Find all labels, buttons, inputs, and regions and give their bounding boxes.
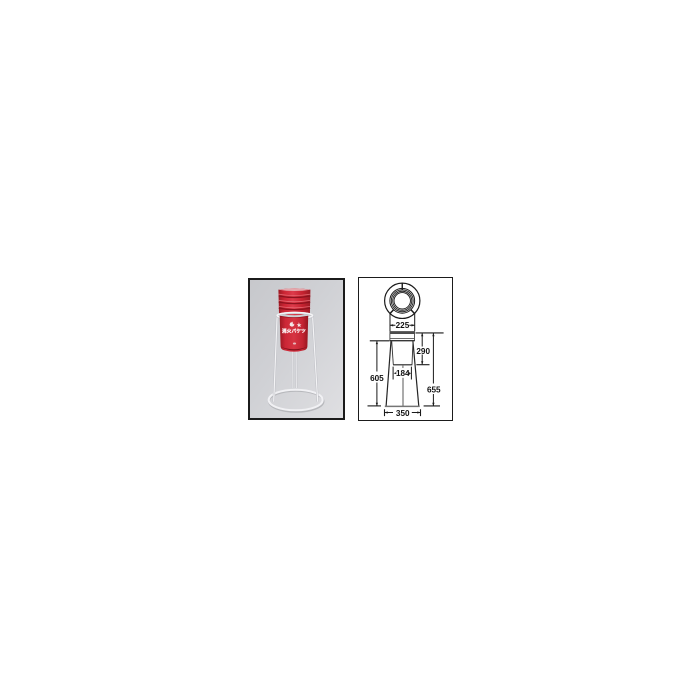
svg-text:184: 184 <box>396 369 410 378</box>
svg-text:655: 655 <box>427 385 441 394</box>
svg-text:消火バケツ: 消火バケツ <box>282 327 306 334</box>
svg-text:225: 225 <box>396 321 410 330</box>
svg-text:605: 605 <box>370 374 384 383</box>
svg-text:350: 350 <box>396 409 410 418</box>
svg-text:290: 290 <box>416 347 430 356</box>
